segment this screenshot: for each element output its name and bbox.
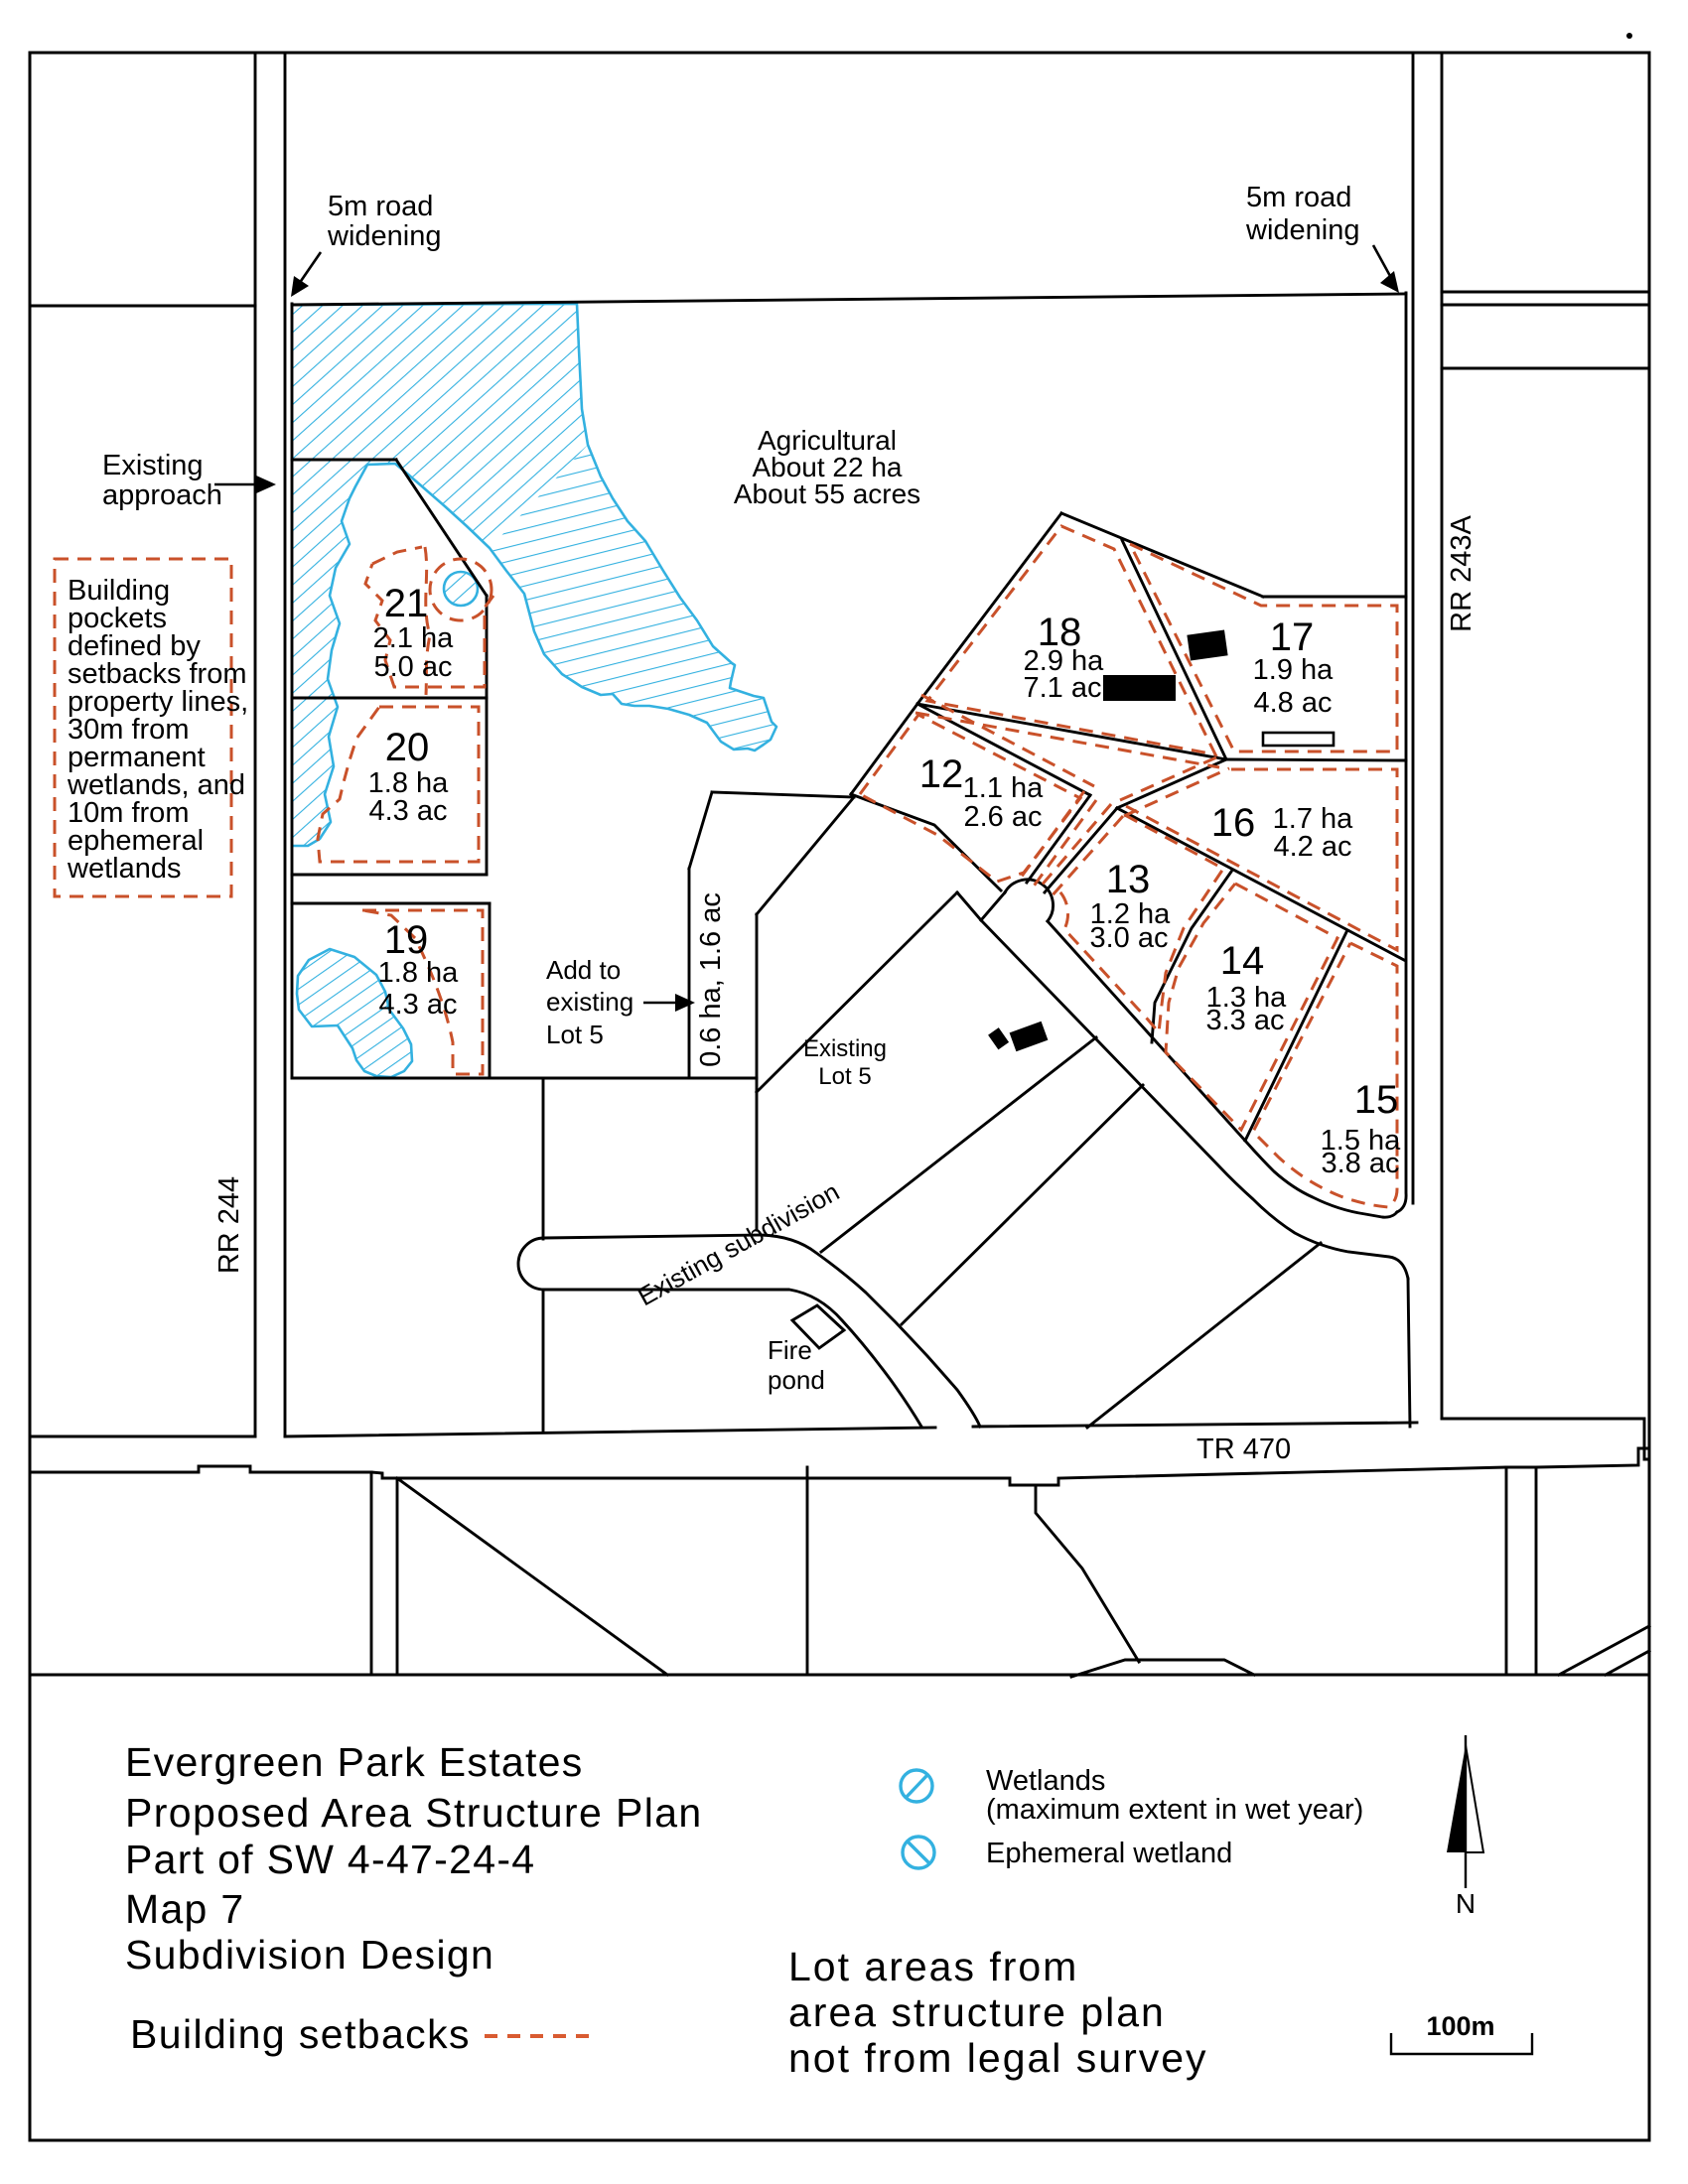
svg-text:Subdivision Design: Subdivision Design <box>125 1932 494 1978</box>
svg-text:Fire: Fire <box>768 1335 812 1365</box>
svg-text:existing: existing <box>546 987 633 1017</box>
svg-text:4.2 ac: 4.2 ac <box>1274 831 1352 863</box>
svg-text:not from legal survey: not from legal survey <box>788 2035 1208 2081</box>
svg-text:widening: widening <box>1245 214 1359 246</box>
svg-text:Proposed Area Structure Plan: Proposed Area Structure Plan <box>125 1790 703 1836</box>
svg-text:0.6 ha, 1.6 ac: 0.6 ha, 1.6 ac <box>695 892 727 1067</box>
svg-text:3.0 ac: 3.0 ac <box>1090 922 1169 954</box>
svg-text:Add to: Add to <box>546 955 621 985</box>
svg-text:20: 20 <box>385 726 430 769</box>
svg-text:Lot areas from: Lot areas from <box>788 1944 1078 1989</box>
svg-text:4.8 ac: 4.8 ac <box>1254 687 1333 719</box>
svg-text:5m road: 5m road <box>1246 182 1351 213</box>
svg-text:16: 16 <box>1211 801 1256 845</box>
svg-text:19: 19 <box>384 918 429 962</box>
svg-text:1.8 ha: 1.8 ha <box>378 957 459 989</box>
svg-text:3.3 ac: 3.3 ac <box>1206 1005 1285 1036</box>
svg-text:17: 17 <box>1270 615 1315 659</box>
svg-text:100m: 100m <box>1426 2011 1494 2041</box>
svg-text:Building setbacks: Building setbacks <box>130 2011 471 2057</box>
svg-text:wetlands: wetlands <box>67 853 181 885</box>
svg-text:widening: widening <box>327 220 441 252</box>
svg-text:14: 14 <box>1220 939 1265 983</box>
svg-text:TR 470: TR 470 <box>1196 1433 1291 1465</box>
svg-text:Lot 5: Lot 5 <box>546 1020 604 1049</box>
svg-text:About 55 acres: About 55 acres <box>734 478 920 509</box>
svg-text:RR 244: RR 244 <box>213 1176 245 1274</box>
svg-text:7.1 ac: 7.1 ac <box>1024 672 1102 704</box>
svg-text:2.6 ac: 2.6 ac <box>964 801 1043 833</box>
svg-text:5.0 ac: 5.0 ac <box>374 651 453 683</box>
svg-text:5m road: 5m road <box>328 191 433 222</box>
svg-text:pond: pond <box>768 1365 825 1395</box>
svg-text:13: 13 <box>1106 858 1151 901</box>
svg-text:approach: approach <box>102 479 222 511</box>
svg-text:Evergreen Park Estates: Evergreen Park Estates <box>125 1739 584 1785</box>
svg-text:Lot 5: Lot 5 <box>818 1063 871 1090</box>
svg-text:Part of SW 4-47-24-4: Part of SW 4-47-24-4 <box>125 1837 535 1882</box>
svg-text:4.3 ac: 4.3 ac <box>379 989 458 1021</box>
svg-text:2.1 ha: 2.1 ha <box>373 622 454 654</box>
svg-text:Existing: Existing <box>803 1035 887 1062</box>
svg-text:1.9 ha: 1.9 ha <box>1253 654 1334 686</box>
svg-text:Map 7: Map 7 <box>125 1886 244 1932</box>
svg-text:12: 12 <box>919 752 964 796</box>
svg-text:N: N <box>1456 1888 1476 1919</box>
svg-text:area structure plan: area structure plan <box>788 1989 1166 2035</box>
svg-text:3.8 ac: 3.8 ac <box>1322 1148 1400 1179</box>
svg-text:4.3 ac: 4.3 ac <box>369 795 448 827</box>
svg-text:21: 21 <box>384 582 429 625</box>
svg-text:1.1 ha: 1.1 ha <box>963 772 1044 804</box>
svg-text:(maximum extent in wet year): (maximum extent in wet year) <box>986 1794 1363 1826</box>
svg-text:Ephemeral wetland: Ephemeral wetland <box>986 1838 1232 1869</box>
svg-text:Existing: Existing <box>102 450 204 481</box>
svg-text:Wetlands: Wetlands <box>986 1765 1105 1797</box>
svg-text:RR 243A: RR 243A <box>1446 515 1477 632</box>
svg-text:15: 15 <box>1354 1078 1399 1122</box>
